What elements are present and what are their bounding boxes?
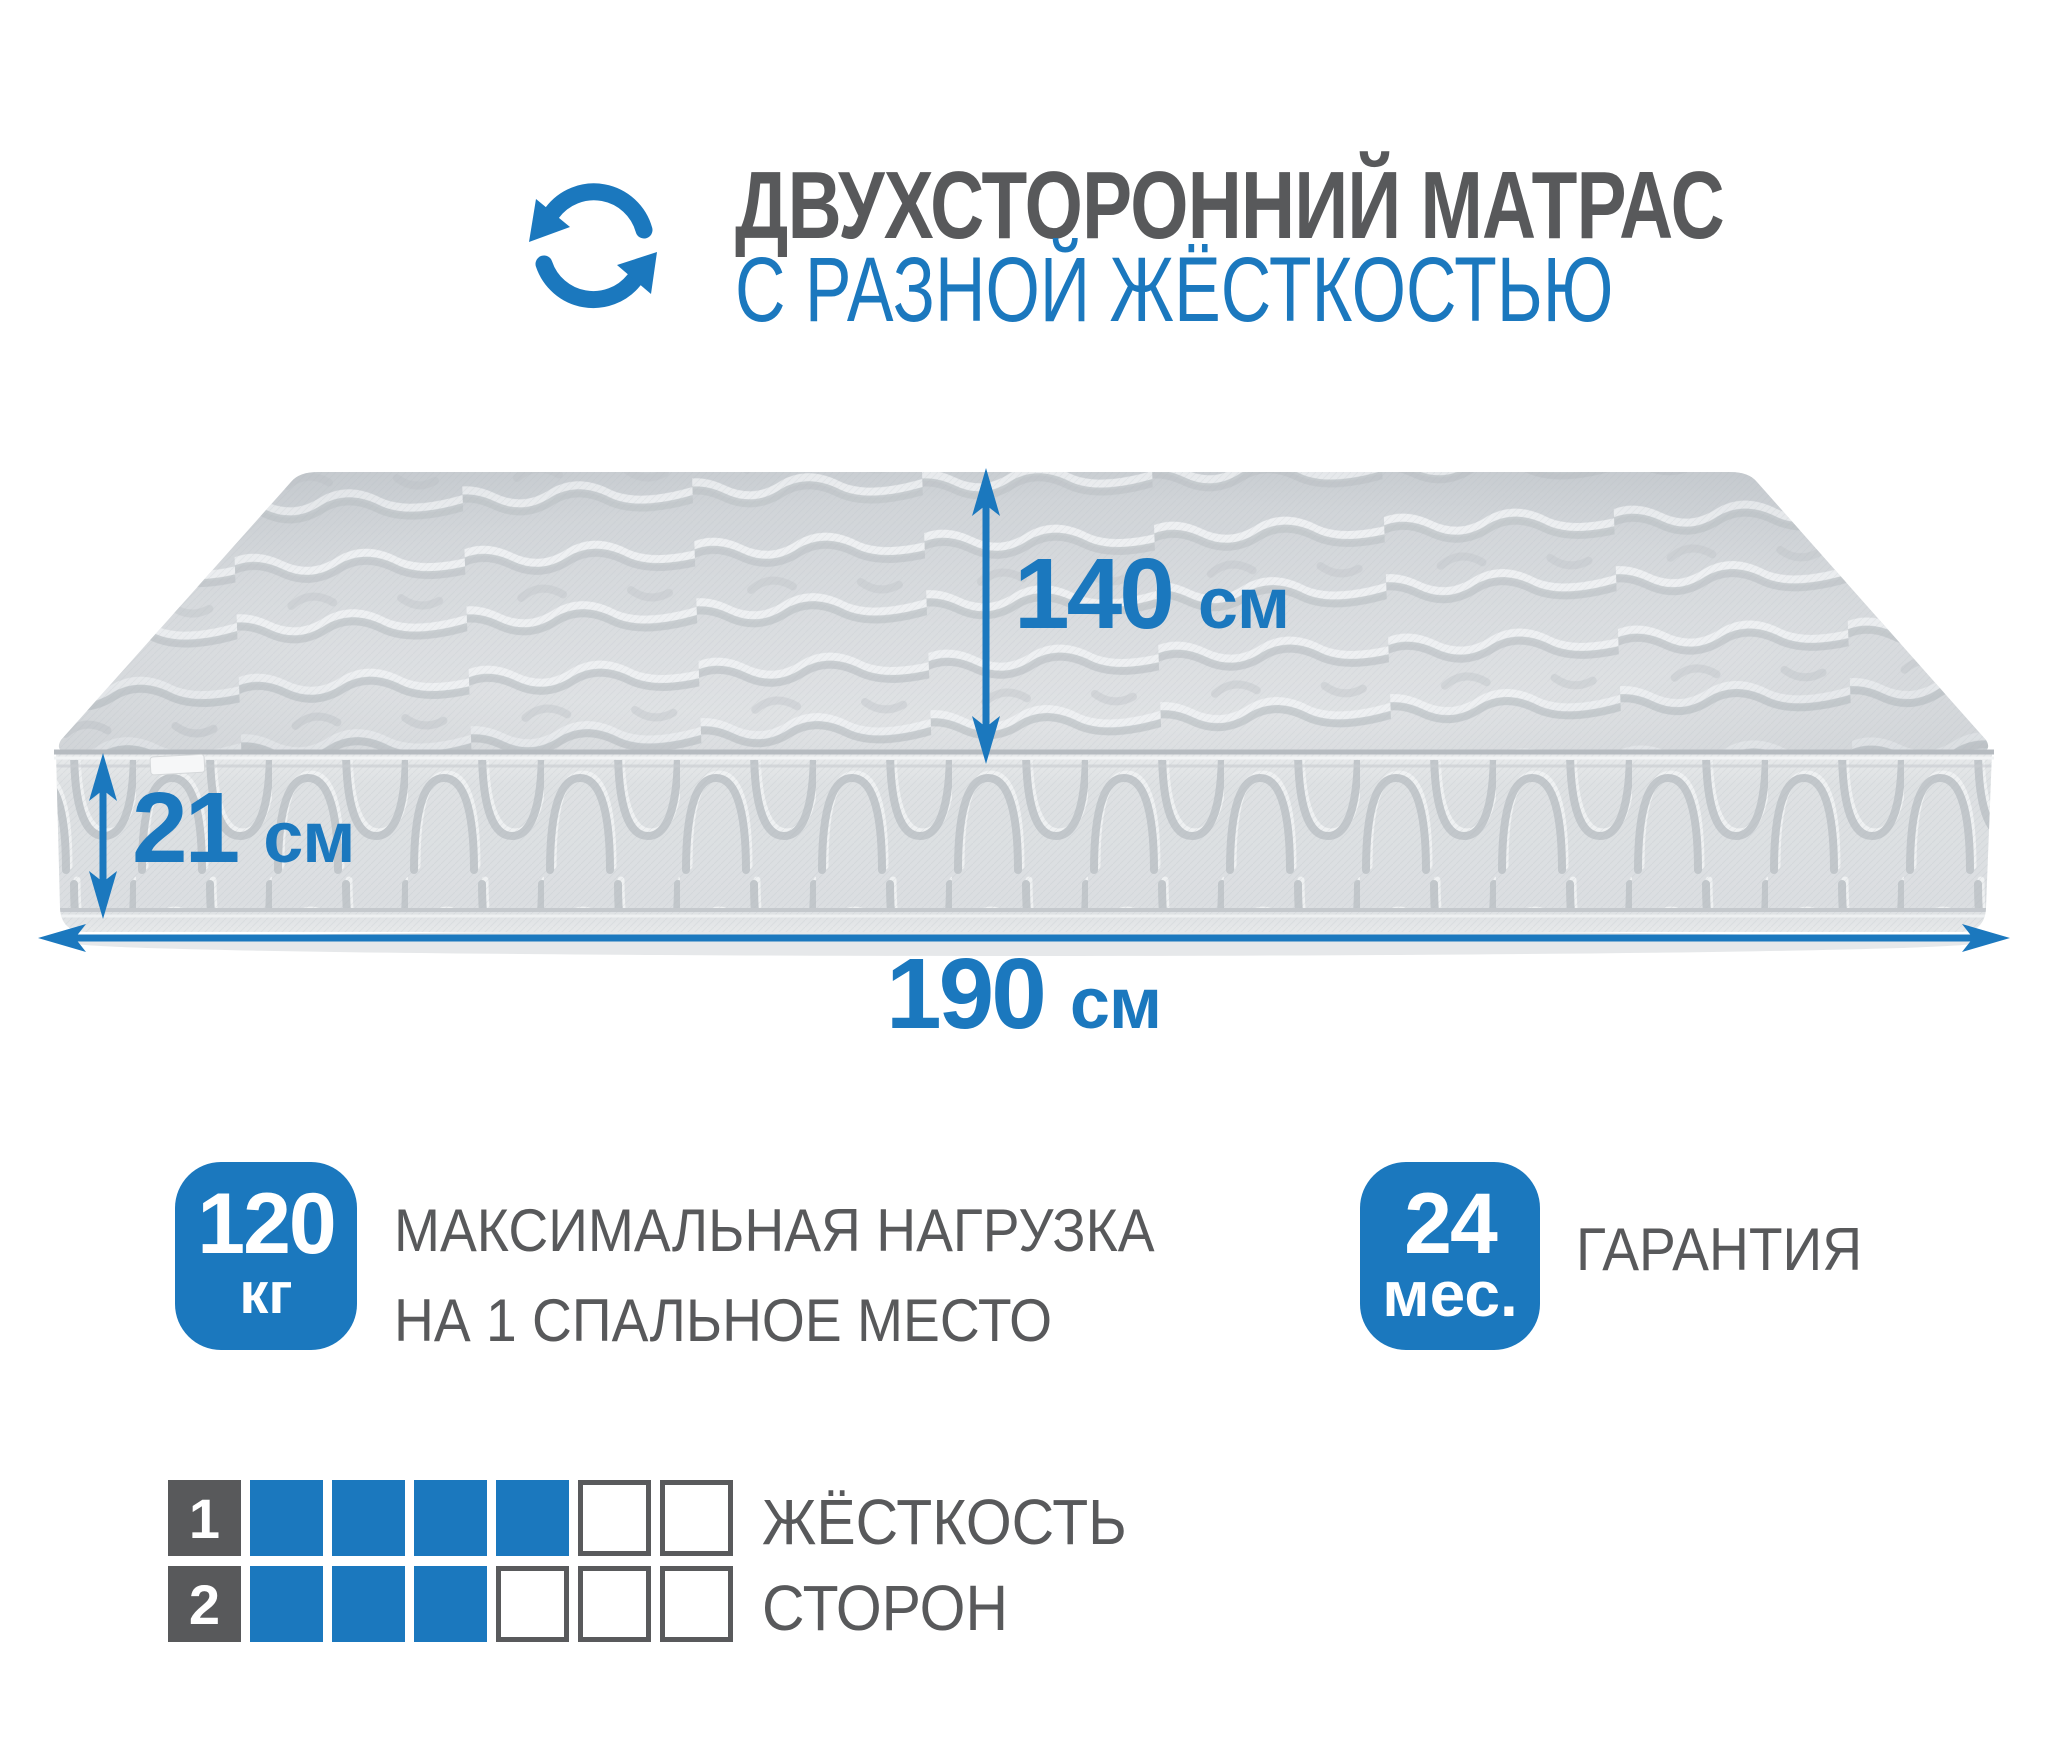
mattress-infographic: ДВУХСТОРОННИЙ МАТРАС С РАЗНОЙ ЖЁСТКОСТЬЮ — [0, 0, 2048, 1757]
firmness-cell-filled — [332, 1566, 405, 1642]
page-subtitle: С РАЗНОЙ ЖЁСТКОСТЬЮ — [735, 244, 1613, 336]
width-unit: см — [1198, 568, 1289, 640]
height-unit: см — [263, 802, 354, 874]
firmness-side-number: 1 — [168, 1480, 241, 1556]
length-dimension-label: 190 см — [886, 944, 1161, 1044]
width-dimension-arrow — [958, 466, 1014, 766]
firmness-cell-empty — [660, 1566, 733, 1642]
firmness-cell-filled — [332, 1480, 405, 1556]
rotate-arrows-icon — [505, 172, 685, 324]
firmness-cell-empty — [578, 1566, 651, 1642]
mattress-image — [0, 430, 2048, 970]
warranty-unit: мес. — [1382, 1262, 1517, 1326]
firmness-label-line1: ЖЁСТКОСТЬ — [762, 1490, 1127, 1554]
warranty-value: 24 — [1404, 1186, 1496, 1262]
max-load-description-line1: МАКСИМАЛЬНАЯ НАГРУЗКА — [394, 1186, 1155, 1276]
width-dimension-label: 140 см — [1014, 544, 1289, 644]
length-value: 190 — [886, 944, 1044, 1044]
height-value: 21 — [132, 778, 237, 878]
firmness-cell-filled — [414, 1480, 487, 1556]
firmness-cell-empty — [496, 1566, 569, 1642]
max-load-description-line2: НА 1 СПАЛЬНОЕ МЕСТО — [394, 1276, 1155, 1366]
firmness-row-side-1: 1 — [168, 1480, 733, 1556]
max-load-badge: 120 кг — [175, 1162, 357, 1350]
firmness-cell-filled — [496, 1480, 569, 1556]
firmness-side-number: 2 — [168, 1566, 241, 1642]
firmness-row-side-2: 2 — [168, 1566, 733, 1642]
height-dimension-label: 21 см — [132, 778, 355, 878]
max-load-description: МАКСИМАЛЬНАЯ НАГРУЗКА НА 1 СПАЛЬНОЕ МЕСТ… — [394, 1186, 1155, 1366]
height-dimension-arrow — [75, 751, 131, 921]
firmness-cell-empty — [578, 1480, 651, 1556]
warranty-badge: 24 мес. — [1360, 1162, 1540, 1350]
firmness-cell-empty — [660, 1480, 733, 1556]
width-value: 140 — [1014, 544, 1172, 644]
max-load-value: 120 — [197, 1186, 335, 1262]
length-unit: см — [1070, 968, 1161, 1040]
firmness-label-line2: СТОРОН — [762, 1576, 1008, 1640]
warranty-label: ГАРАНТИЯ — [1576, 1218, 1862, 1282]
max-load-unit: кг — [239, 1262, 292, 1326]
firmness-cell-filled — [250, 1480, 323, 1556]
firmness-cell-filled — [414, 1566, 487, 1642]
firmness-cell-filled — [250, 1566, 323, 1642]
